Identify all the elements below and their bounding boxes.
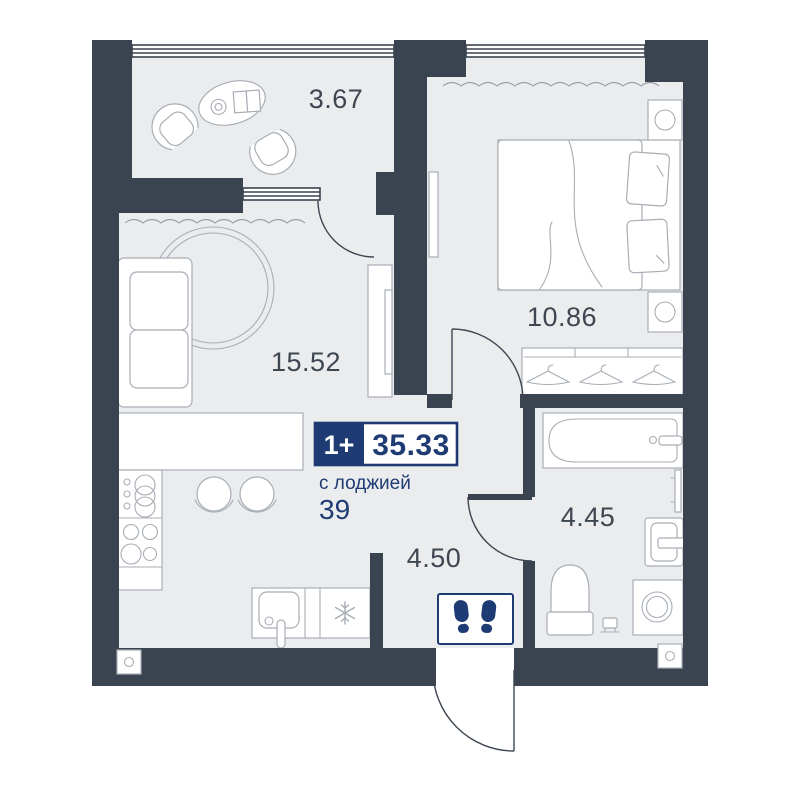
bed-duvet xyxy=(498,140,642,290)
floor-plan: 3.67 15.52 10.86 4.45 4.50 1+ 35.33 с ло… xyxy=(0,0,800,800)
wall-segment xyxy=(376,172,394,215)
wall-segment xyxy=(92,40,132,178)
wall-segment xyxy=(427,394,452,408)
floor-plan-canvas: 3.67 15.52 10.86 4.45 4.50 1+ 35.33 с ло… xyxy=(0,0,800,800)
loggia-book xyxy=(233,90,260,113)
entrance-mat xyxy=(438,594,513,644)
tv-icon xyxy=(385,290,392,374)
bathtub xyxy=(543,413,683,468)
nightstand-top xyxy=(648,100,682,140)
wardrobe xyxy=(522,348,683,395)
unit-type-label: 1+ xyxy=(324,430,355,460)
kitchen-counter-left xyxy=(117,470,162,590)
wall-segment xyxy=(370,553,383,648)
room-label-loggia: 3.67 xyxy=(309,84,364,114)
nightstand-bottom xyxy=(648,292,682,332)
faucet-icon xyxy=(277,620,285,648)
wall-segment xyxy=(117,178,243,213)
washbasin xyxy=(645,518,684,566)
bath-faucet-icon xyxy=(659,436,682,445)
bedroom-window xyxy=(466,45,645,57)
bed xyxy=(498,140,680,290)
wall-segment xyxy=(683,40,708,648)
vent-icon xyxy=(117,650,141,674)
loggia-living-window xyxy=(243,188,320,200)
kitchen-island xyxy=(117,413,303,470)
wall-segment xyxy=(520,394,683,408)
room-label-bathroom: 4.45 xyxy=(561,502,616,532)
entrance-door xyxy=(433,648,514,751)
vent-icon xyxy=(658,644,682,668)
bedroom-tv-icon xyxy=(429,172,438,257)
tv-cabinet xyxy=(368,265,392,397)
sofa xyxy=(118,258,192,407)
toilet xyxy=(547,565,593,635)
unit-number: 39 xyxy=(319,494,350,525)
wall-segment xyxy=(92,178,119,648)
wall-segment xyxy=(92,648,708,686)
unit-area-note: с лоджией xyxy=(319,473,411,494)
washing-machine xyxy=(633,580,683,635)
bed-pillow-1 xyxy=(626,152,670,207)
room-label-hallway: 4.50 xyxy=(407,543,462,573)
bed-pillow-2 xyxy=(627,219,670,273)
wall-segment xyxy=(523,561,535,648)
wall-segment xyxy=(523,408,535,497)
wall-segment xyxy=(394,40,427,395)
loggia-window xyxy=(132,45,394,57)
room-label-bedroom: 10.86 xyxy=(527,302,597,332)
wall-segment xyxy=(645,40,708,82)
unit-area-value: 35.33 xyxy=(372,429,450,462)
room-label-living: 15.52 xyxy=(271,347,341,377)
